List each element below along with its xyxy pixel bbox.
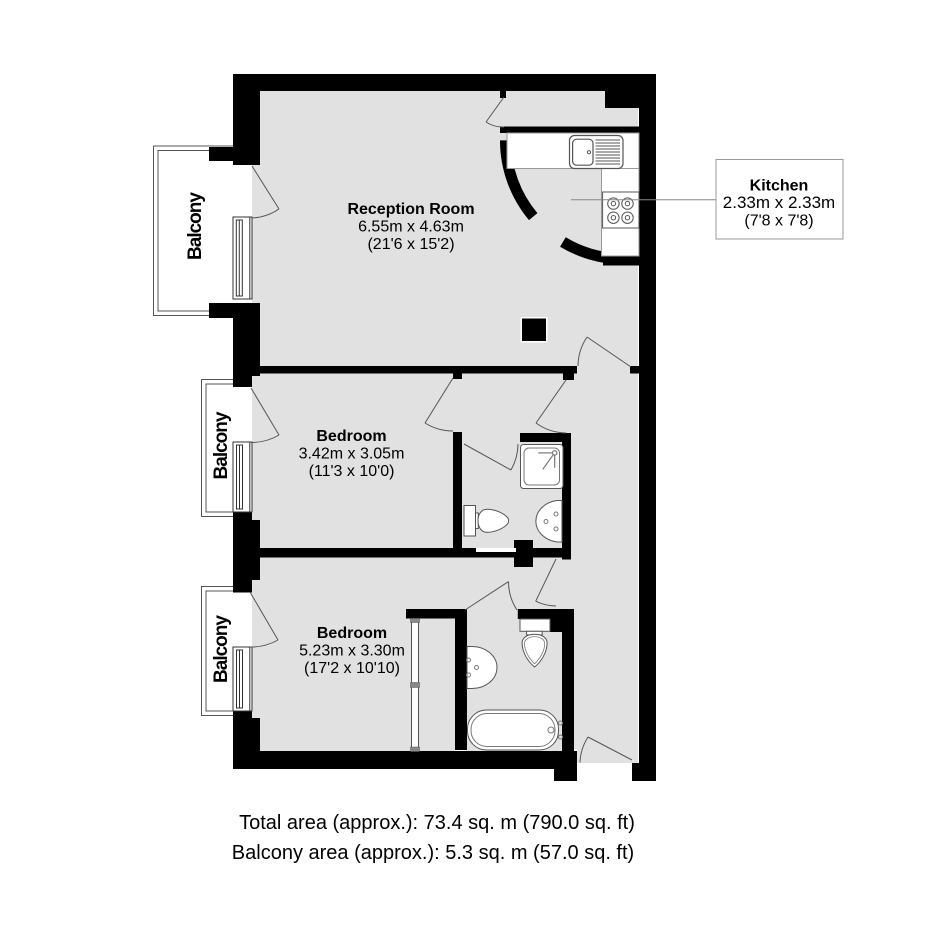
svg-text:Total area (approx.): 73.4 sq.: Total area (approx.): 73.4 sq. m (790.0 … [239, 812, 635, 834]
svg-text:3.42m x 3.05m: 3.42m x 3.05m [299, 446, 405, 463]
svg-text:Balcony: Balcony [211, 615, 232, 683]
svg-text:Balcony: Balcony [211, 411, 232, 479]
svg-text:(11'3 x 10'0): (11'3 x 10'0) [309, 463, 395, 480]
svg-text:Balcony area (approx.): 5.3 sq: Balcony area (approx.): 5.3 sq. m (57.0 … [232, 842, 634, 864]
svg-text:Bedroom: Bedroom [317, 625, 387, 642]
svg-text:2.33m x 2.33m: 2.33m x 2.33m [723, 193, 835, 212]
svg-text:Reception Room: Reception Room [347, 201, 474, 218]
svg-text:(21'6 x 15'2): (21'6 x 15'2) [367, 236, 454, 253]
svg-text:Kitchen: Kitchen [750, 178, 809, 195]
svg-text:(17'2 x 10'10): (17'2 x 10'10) [304, 660, 400, 677]
svg-text:5.23m x 3.30m: 5.23m x 3.30m [299, 643, 405, 660]
svg-text:Bedroom: Bedroom [316, 428, 386, 445]
svg-text:6.55m x 4.63m: 6.55m x 4.63m [358, 219, 464, 236]
svg-text:Balcony: Balcony [185, 192, 206, 260]
svg-text:(7'8 x 7'8): (7'8 x 7'8) [744, 213, 813, 230]
